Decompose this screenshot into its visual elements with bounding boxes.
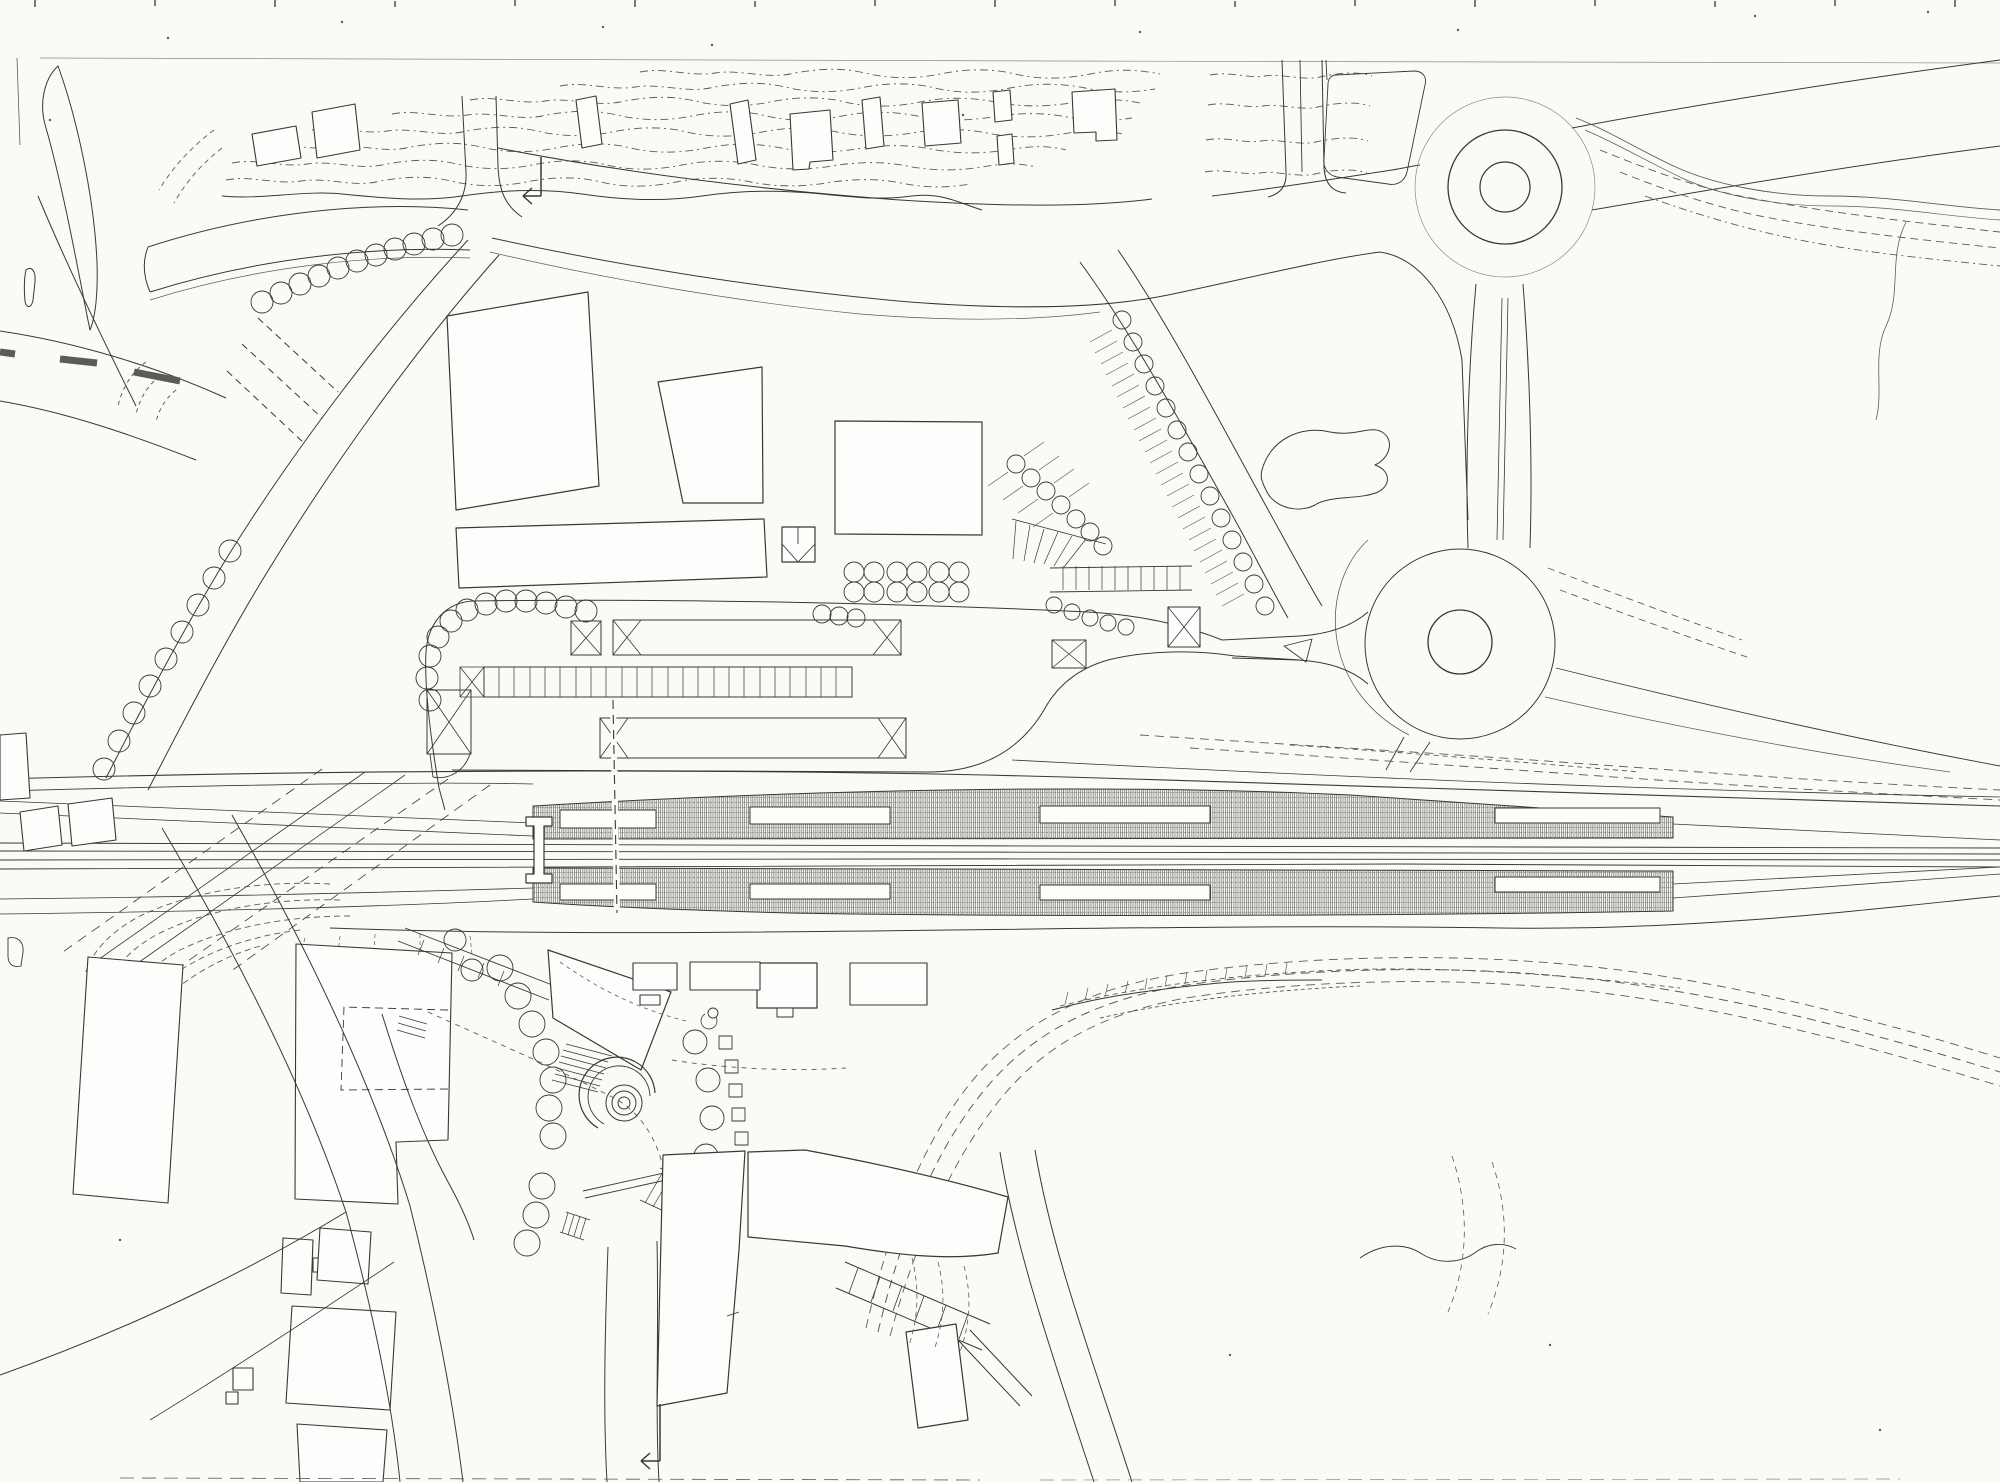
pond [1261, 430, 1389, 509]
corridor-north-embankment [1140, 735, 2000, 800]
top-band-houses [252, 89, 1117, 170]
northwest-street-trees [93, 224, 463, 780]
south-complex [657, 1150, 1032, 1428]
site-plan-drawing [0, 0, 2000, 1482]
sheet-marks [17, 0, 2000, 1431]
southwest-buildings [0, 733, 452, 1482]
east-stream [1572, 60, 2000, 420]
bus-loop [416, 590, 1300, 810]
northwest-road-details [0, 318, 338, 444]
roundabout-north [1300, 60, 1595, 277]
site-plan-sheet [0, 0, 2000, 1482]
center-buildings [447, 292, 982, 588]
roundabout-south [1222, 284, 2000, 772]
southeast-avenue [1080, 250, 1322, 618]
